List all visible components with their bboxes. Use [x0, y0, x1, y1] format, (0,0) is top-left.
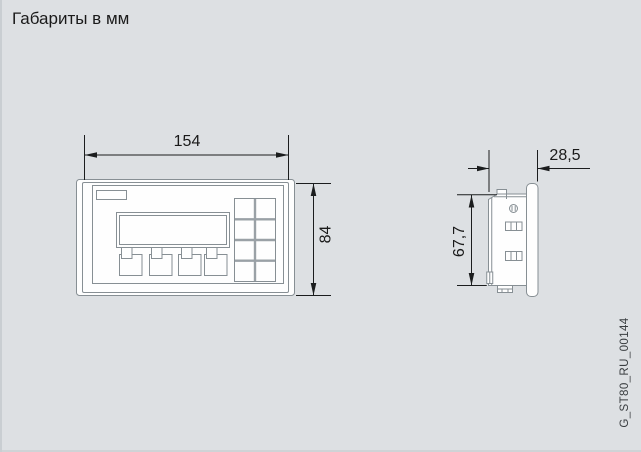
arrowhead-left — [538, 166, 550, 172]
dimension-depth-label: 28,5 — [534, 146, 596, 166]
front-view-drawing — [77, 180, 295, 296]
arrowhead-up — [469, 195, 475, 208]
keypad-grid — [235, 199, 276, 282]
side-view-drawing — [487, 184, 538, 297]
arrowhead-up — [311, 184, 317, 197]
dimension-drawing-page: { "title": "Габариты в мм", "figure_id":… — [0, 0, 641, 452]
top-latch — [497, 190, 507, 195]
arrowhead-down — [311, 283, 317, 296]
connector-block — [506, 252, 523, 261]
housing-outline — [489, 194, 527, 286]
dimension-height-label: 84 — [316, 215, 337, 255]
figure-id-watermark: G_ST80_RU_00144 — [616, 297, 633, 448]
function-key-tab — [122, 248, 133, 259]
arrowhead-down — [469, 273, 475, 286]
page-title: Габариты в мм — [12, 9, 129, 29]
arrowhead-right — [477, 166, 489, 172]
bezel-outline — [527, 184, 539, 297]
bottom-connector — [498, 286, 513, 293]
function-key-tab — [152, 248, 163, 259]
arrowhead-left — [85, 152, 98, 158]
dimension-mount-height-label: 67,7 — [449, 221, 470, 262]
dimension-width-label: 154 — [156, 132, 218, 152]
function-key-tab — [182, 248, 193, 259]
arrowhead-right — [276, 152, 289, 158]
function-key-tab — [207, 248, 218, 259]
screw-icon — [510, 205, 518, 213]
connector-block — [506, 222, 523, 231]
